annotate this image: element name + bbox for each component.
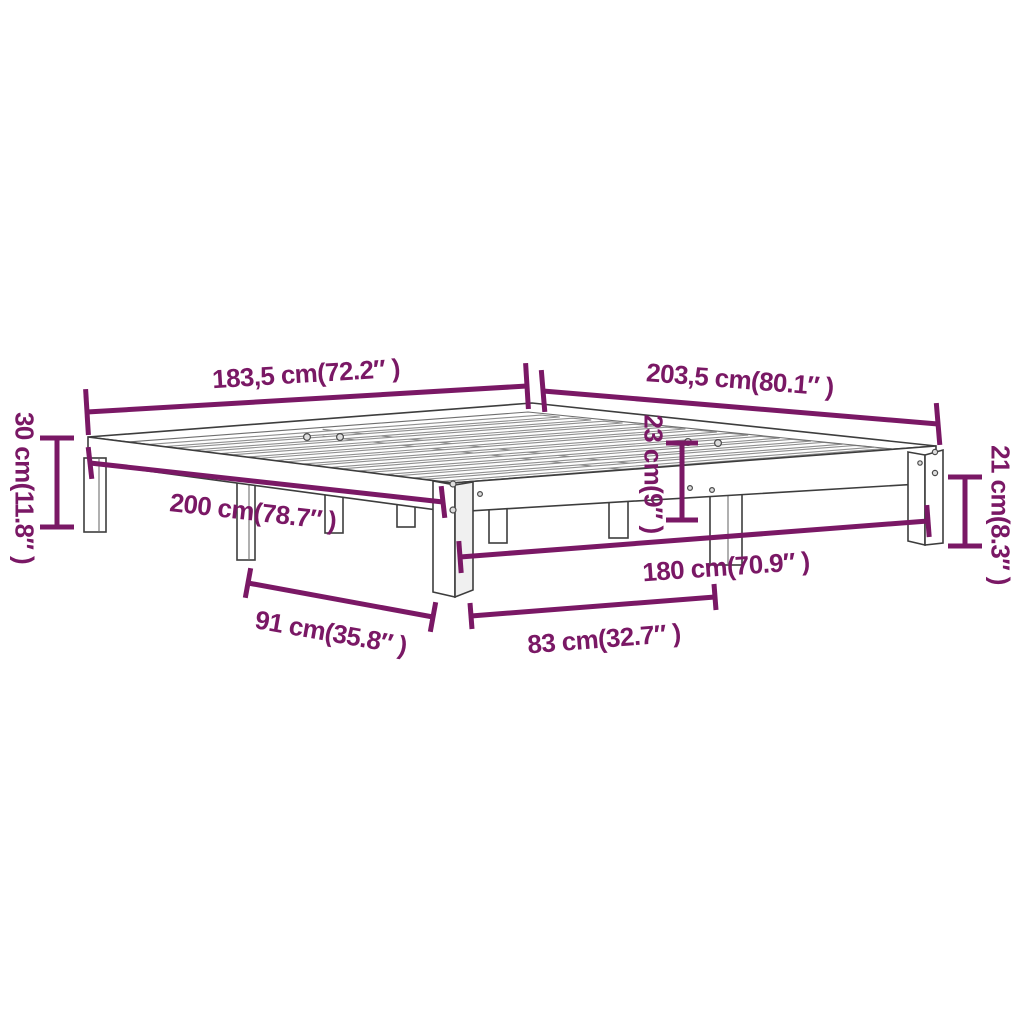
bed-frame-line-art bbox=[0, 0, 1024, 1024]
bolt-icon bbox=[932, 449, 937, 454]
bolt-icon bbox=[450, 507, 456, 513]
dimension-line bbox=[460, 521, 928, 557]
dimension-rail-height bbox=[948, 477, 982, 546]
bolt-icon bbox=[688, 486, 693, 491]
dim-label-under-slat-height: 23 cm(9″ ) bbox=[638, 414, 669, 533]
dimension-cap bbox=[927, 505, 929, 537]
dimension-cap bbox=[245, 568, 250, 598]
dim-label-height-left: 30 cm(11.8″ ) bbox=[9, 412, 40, 564]
dim-label-rail-height: 21 cm(8.3″ ) bbox=[985, 445, 1016, 585]
bolt-icon bbox=[337, 434, 344, 441]
bed-leg-right-corner bbox=[908, 452, 925, 545]
bed-support-foot bbox=[489, 508, 507, 543]
dimension-cap bbox=[526, 363, 529, 409]
bolt-icon bbox=[478, 492, 483, 497]
dimension-line bbox=[471, 597, 715, 616]
bolt-icon bbox=[710, 488, 715, 493]
dimension-diagram: 183,5 cm(72.2″ ) 203,5 cm(80.1″ ) 30 cm(… bbox=[0, 0, 1024, 1024]
dimension-cap bbox=[714, 584, 716, 610]
bolt-icon bbox=[304, 434, 311, 441]
bolt-icon bbox=[932, 470, 937, 475]
dimension-cap bbox=[936, 403, 940, 445]
bed-support-foot bbox=[609, 500, 628, 538]
dimension-height-left bbox=[40, 438, 74, 527]
dimension-cap bbox=[86, 389, 89, 435]
bolt-icon bbox=[918, 461, 922, 465]
bed-leg-near-corner-side bbox=[455, 482, 473, 597]
dimension-cap bbox=[430, 602, 435, 632]
bolt-icon bbox=[715, 440, 722, 447]
dimension-cap bbox=[541, 370, 545, 412]
bed-leg-back-left bbox=[84, 458, 106, 532]
dimension-cap bbox=[470, 603, 472, 629]
dimension-cap bbox=[459, 541, 461, 573]
bolt-icon bbox=[450, 481, 456, 487]
